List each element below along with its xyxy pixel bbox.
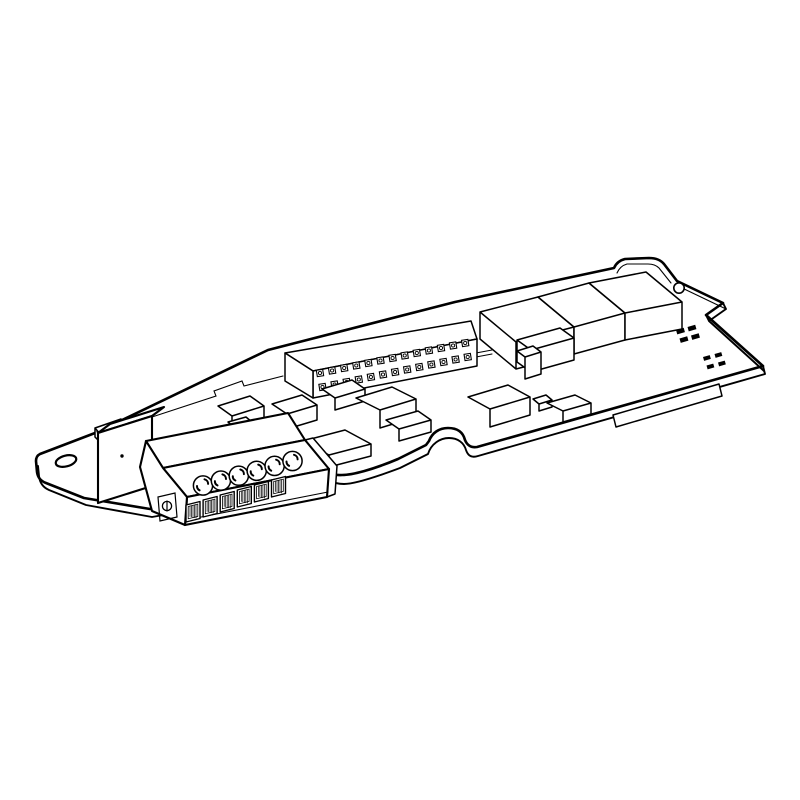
header-pin [353, 362, 360, 369]
header-pin [413, 349, 420, 356]
header-pin [377, 357, 384, 364]
illustration-page: Line illustration of an electronic optio… [0, 0, 800, 800]
header-pin [425, 347, 432, 354]
header-pin [389, 354, 396, 361]
header-pin [341, 364, 348, 371]
header-pin [440, 358, 447, 365]
header-pin [367, 373, 374, 380]
header-pin [452, 356, 459, 363]
header-pin [416, 363, 423, 370]
header-pin [449, 342, 456, 349]
pcb-illustration [0, 0, 800, 800]
header-pin [379, 371, 386, 378]
header-pin [428, 361, 435, 368]
header-pin [401, 352, 408, 359]
header-pin [365, 359, 372, 366]
header-pin [437, 344, 444, 351]
header-pin [328, 367, 335, 374]
header-pin [391, 368, 398, 375]
header-pin [462, 339, 469, 346]
header-pin [464, 353, 471, 360]
board-hole-small [674, 283, 684, 293]
header-pin [404, 366, 411, 373]
relay-dot [120, 454, 123, 457]
header-pin [316, 369, 323, 376]
